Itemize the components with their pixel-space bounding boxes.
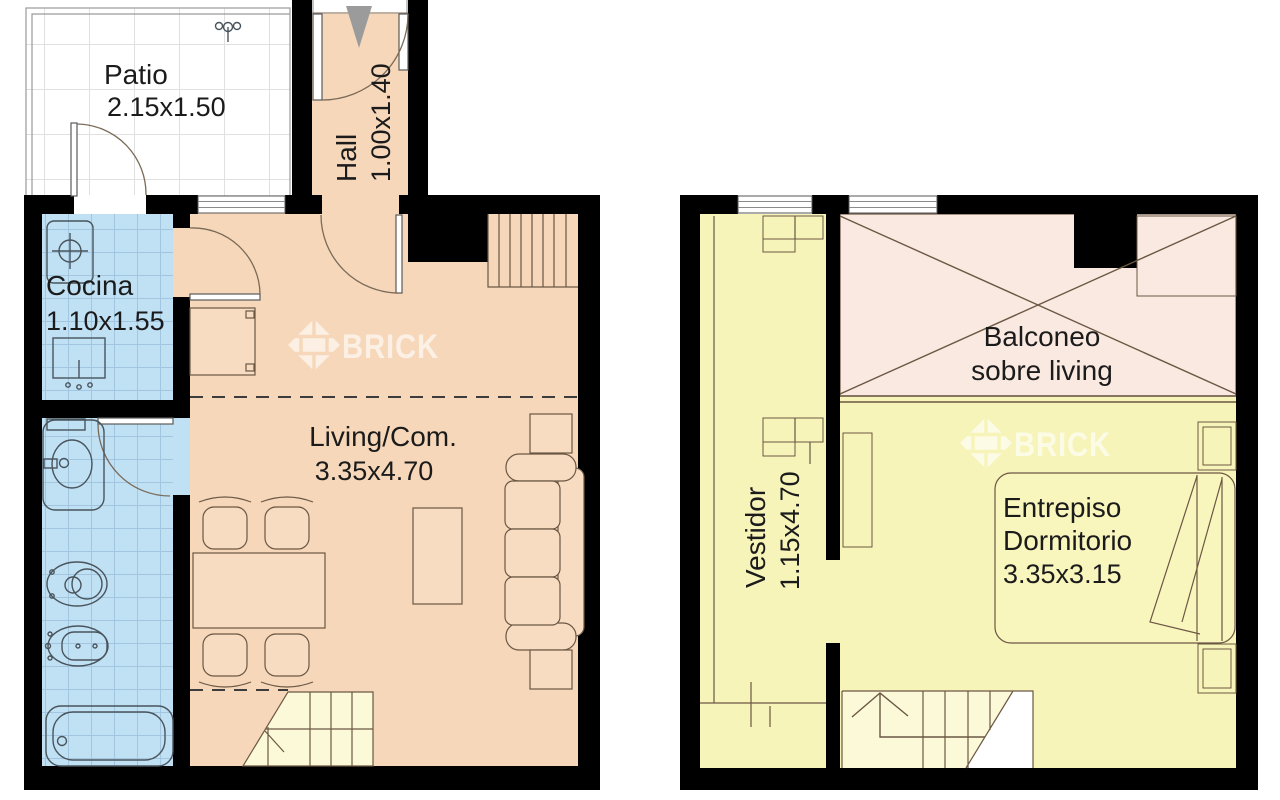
hall-dims: 1.00x1.40 — [366, 63, 396, 182]
brick-logo-text: BRICK — [342, 328, 439, 366]
side-table-top — [530, 414, 572, 453]
vestidor-window — [738, 196, 812, 213]
vestidor-label: Vestidor — [740, 487, 771, 588]
lower-plan: Patio 2.15x1.50 Hall 1.00x1.40 Cocina 1.… — [24, 0, 600, 790]
bath-door-threshold — [173, 418, 190, 495]
side-table-bottom — [530, 650, 572, 689]
patio-label: Patio — [104, 59, 168, 90]
upper-plan: Balconeo sobre living Vestidor 1.15x4.70… — [680, 195, 1258, 790]
stairs-arrival — [842, 691, 1033, 768]
dining-table — [193, 553, 325, 628]
stairs-upper-flight — [488, 214, 578, 287]
living-dims: 3.35x4.70 — [315, 456, 434, 486]
dormitorio-label-line1: Entrepiso — [1003, 492, 1121, 523]
floorplan-canvas: Patio 2.15x1.50 Hall 1.00x1.40 Cocina 1.… — [0, 0, 1280, 800]
fridge — [190, 308, 255, 375]
brick-logo-text: BRICK — [1014, 426, 1111, 464]
patio-dims: 2.15x1.50 — [107, 92, 226, 122]
entry-door-frame-left — [313, 14, 322, 100]
coffee-table — [413, 508, 462, 604]
hall-threshold — [322, 195, 399, 214]
hall-label: Hall — [331, 134, 362, 182]
vestidor-dims: 1.15x4.70 — [775, 471, 805, 590]
dormitorio-dims: 3.35x3.15 — [1003, 559, 1122, 589]
patio-living-window — [198, 196, 285, 213]
cocina-dims: 1.10x1.55 — [46, 306, 165, 336]
dormitorio-label-line2: Dormitorio — [1003, 525, 1132, 556]
balconeo-label-line1: Balconeo — [984, 321, 1101, 352]
kitchen-door-threshold — [173, 228, 190, 297]
vestidor-door-threshold — [826, 560, 840, 643]
balconeo-label-line2: sobre living — [971, 355, 1113, 386]
balconeo-window — [849, 196, 937, 213]
patio-door-threshold — [74, 195, 146, 214]
living-label: Living/Com. — [309, 421, 457, 452]
cocina-label: Cocina — [46, 270, 134, 301]
sofa — [505, 454, 584, 650]
